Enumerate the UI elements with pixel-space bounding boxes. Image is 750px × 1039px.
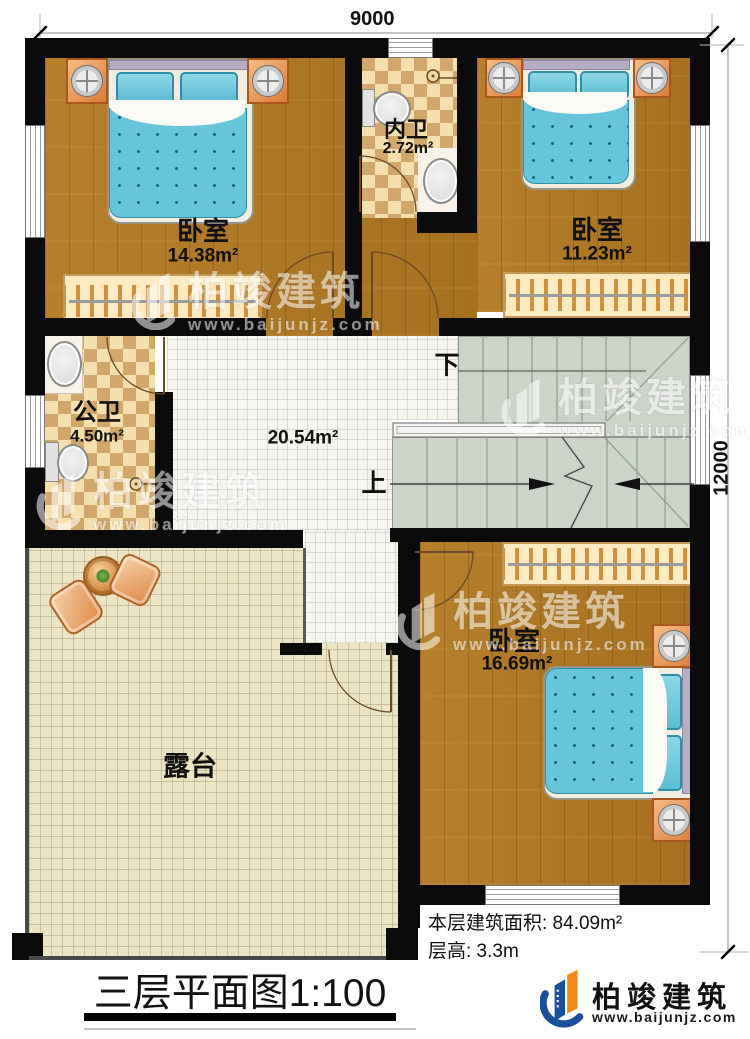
hall-terrace-divider [303, 548, 306, 643]
stairs-lower-flight [392, 437, 690, 530]
brand-url: www.baijunjz.com [592, 1009, 737, 1025]
interior-wall [439, 318, 690, 336]
wardrobe-rod [69, 300, 256, 303]
interior-wall [333, 318, 372, 336]
brand-logo-icon [540, 968, 588, 1028]
interior-wall [457, 58, 477, 233]
bed-bedroom-1 [107, 58, 254, 224]
nightstand [247, 58, 289, 104]
interior-wall [25, 530, 303, 548]
room-area: 11.23m² [562, 245, 632, 264]
lamp-icon [659, 631, 689, 661]
interior-wall [345, 212, 358, 233]
nightstand [66, 58, 108, 104]
interior-wall [345, 58, 362, 322]
room-label: 卧室 [488, 628, 540, 654]
bed-bedroom-2 [521, 58, 636, 190]
floor-area-text: 本层建筑面积: 84.09m² [428, 908, 622, 935]
title-underline [84, 1013, 396, 1021]
stairs-upper-flight [458, 336, 690, 437]
window [25, 395, 45, 468]
room-area: 14.38m² [168, 247, 239, 266]
room-label: 卧室 [571, 217, 623, 243]
interior-wall [280, 643, 322, 655]
floor-plan-canvas: 卧室 14.38m² 内卫 2.72m² 卧室 11.23m² 公卫 4.50m… [0, 0, 750, 1039]
sink [47, 341, 82, 387]
window [25, 125, 45, 238]
room-area: 16.69m² [482, 655, 553, 674]
hall-floor-upper [167, 336, 458, 420]
bed-headboard [523, 60, 630, 70]
window [690, 375, 710, 485]
room-area: 20.54m² [268, 429, 339, 448]
interior-wall [398, 542, 420, 928]
window [690, 125, 710, 242]
wardrobe-bedroom-2 [503, 272, 692, 318]
floor-height-text: 层高: 3.3m [428, 936, 519, 963]
wall-left [25, 38, 45, 548]
stair-up-label: 上 [361, 472, 386, 497]
interior-wall [417, 212, 477, 233]
plan-title: 三层平面图1:100 [60, 962, 420, 1018]
plant-icon [97, 570, 110, 583]
room-label: 公卫 [73, 401, 121, 425]
lamp-icon [253, 66, 283, 96]
terrace-parapet-left [25, 548, 29, 933]
room-area: 4.50m² [70, 428, 124, 445]
dimension-right: 12000 [711, 440, 734, 496]
terrace-parapet-bottom [29, 956, 386, 960]
window [388, 38, 433, 58]
interior-wall [155, 392, 173, 530]
room-area: 2.72m² [383, 141, 434, 157]
bed-blanket [545, 668, 653, 794]
wall-top [25, 38, 710, 58]
wardrobe-rod [508, 563, 686, 566]
room-label: 露台 [163, 754, 217, 781]
wardrobe-rod [509, 294, 686, 297]
room-label: 卧室 [177, 218, 229, 244]
interior-wall [45, 318, 266, 336]
title-underline-thin [84, 1028, 416, 1030]
bed-headboard [109, 60, 248, 70]
bed-sheet-fold [643, 668, 667, 792]
wardrobe-bedroom-3 [502, 542, 692, 586]
window [485, 885, 620, 905]
toilet-bowl [57, 444, 89, 482]
terrace-corner-post [386, 928, 418, 960]
lamp-icon [659, 805, 689, 835]
nightstand [485, 58, 523, 98]
sink [423, 158, 459, 204]
lamp-icon [72, 66, 102, 96]
door-post [386, 643, 398, 655]
hall-floor-jut [305, 530, 398, 643]
room-label: 内卫 [384, 119, 428, 141]
dimension-top: 9000 [350, 8, 395, 31]
stair-down-label: 下 [434, 354, 459, 379]
bed-bedroom-3 [543, 666, 694, 800]
interior-wall [390, 528, 690, 542]
nightstand [633, 58, 671, 98]
lamp-icon [637, 63, 667, 93]
lamp-icon [489, 63, 519, 93]
